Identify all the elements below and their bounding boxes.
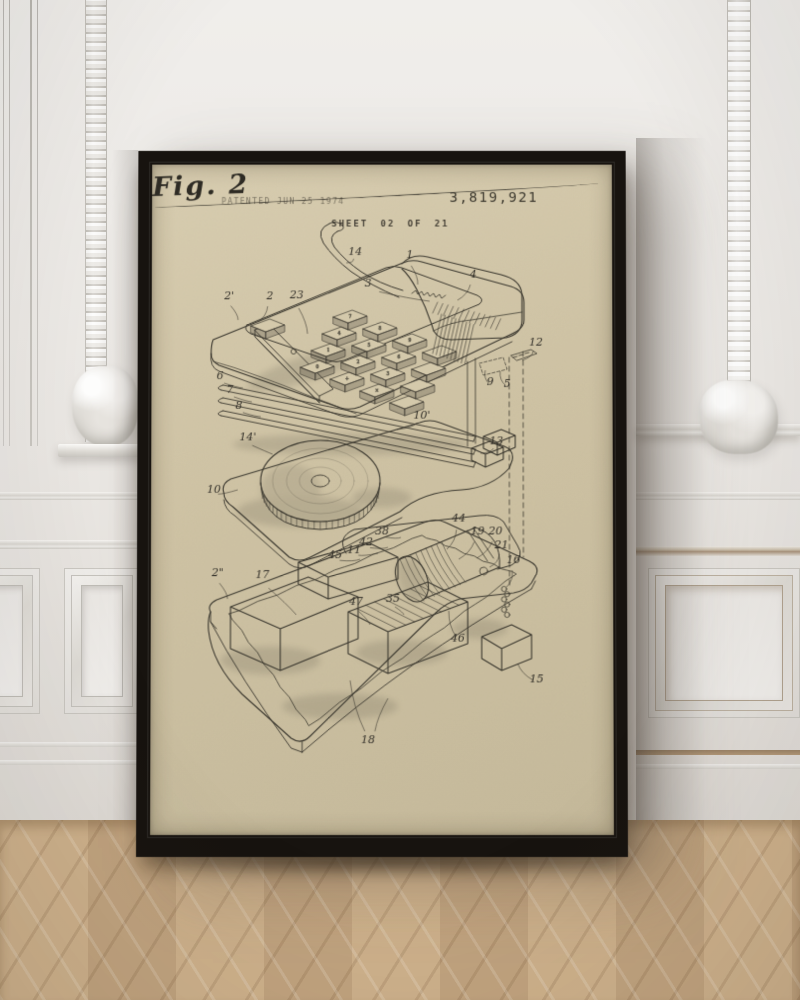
ref-label-4: 4: [469, 268, 477, 281]
ref-label-19: 19: [471, 524, 485, 537]
svg-text:7: 7: [349, 314, 352, 320]
svg-text:3: 3: [387, 371, 390, 377]
patent-number: 3,819,921: [449, 190, 538, 206]
svg-text:0: 0: [316, 364, 319, 370]
left-panel-molding-line-3: [30, 0, 32, 446]
ref-label-2': 2': [223, 289, 234, 302]
ref-label-47: 47: [348, 595, 363, 608]
ref-label-12: 12: [529, 336, 543, 349]
ref-label-44: 44: [451, 512, 466, 525]
ref-label-21: 21: [494, 538, 509, 551]
ref-label-20: 20: [488, 524, 503, 537]
svg-text:9: 9: [408, 338, 411, 344]
ref-label-5: 5: [504, 377, 511, 390]
left-panel-molding-line-4: [37, 0, 38, 446]
svg-text:×: ×: [375, 388, 379, 394]
ref-label-16: 16: [506, 553, 520, 566]
patent-drawing: 0+×123456789: [150, 165, 614, 836]
ref-label-18: 18: [361, 733, 375, 746]
ref-label-17: 17: [255, 568, 269, 581]
ref-label-14: 14: [348, 245, 362, 258]
ref-label-14': 14': [239, 430, 256, 443]
ref-label-23: 23: [289, 288, 304, 301]
ref-label-11: 11: [347, 543, 361, 556]
svg-text:+: +: [345, 376, 349, 382]
ref-label-2: 2: [265, 289, 273, 302]
svg-text:5: 5: [368, 343, 371, 349]
ref-label-38: 38: [375, 524, 389, 537]
ref-label-6: 6: [217, 369, 224, 382]
svg-text:2: 2: [357, 360, 360, 366]
ref-label-3: 3: [365, 277, 372, 290]
ref-label-13: 13: [489, 434, 503, 447]
left-panel-molding-line-2: [9, 0, 10, 446]
ref-label-8: 8: [235, 399, 242, 412]
ref-label-35: 35: [386, 592, 400, 605]
svg-text:8: 8: [379, 326, 382, 332]
scene-photo: { "poster": { "stamp": "PATENTED JUN 25 …: [0, 0, 800, 1000]
ref-label-9: 9: [487, 375, 494, 388]
patent-paper: 0+×123456789: [150, 165, 614, 835]
svg-text:6: 6: [397, 355, 400, 361]
ref-label-46: 46: [450, 632, 465, 645]
frame-cast-shadow-left: [112, 150, 138, 830]
ref-label-1: 1: [406, 248, 413, 261]
ref-label-15: 15: [530, 672, 544, 685]
right-ornate-pilaster: [727, 0, 751, 436]
frame-cast-shadow-right: [636, 138, 706, 838]
wainscot-panel-left-partial: [0, 568, 40, 714]
svg-text:4: 4: [338, 331, 341, 337]
svg-text:1: 1: [327, 348, 330, 354]
sheet-label: SHEET 02 OF 21: [331, 220, 449, 230]
ref-label-7: 7: [226, 383, 233, 396]
left-panel-molding-line: [3, 0, 4, 446]
ref-label-10': 10': [413, 409, 430, 422]
ref-label-2": 2": [211, 566, 224, 579]
poster-frame: 0+×123456789: [136, 151, 628, 857]
scroll-corner-ornament: [700, 380, 778, 454]
ref-label-45: 45: [327, 548, 342, 561]
